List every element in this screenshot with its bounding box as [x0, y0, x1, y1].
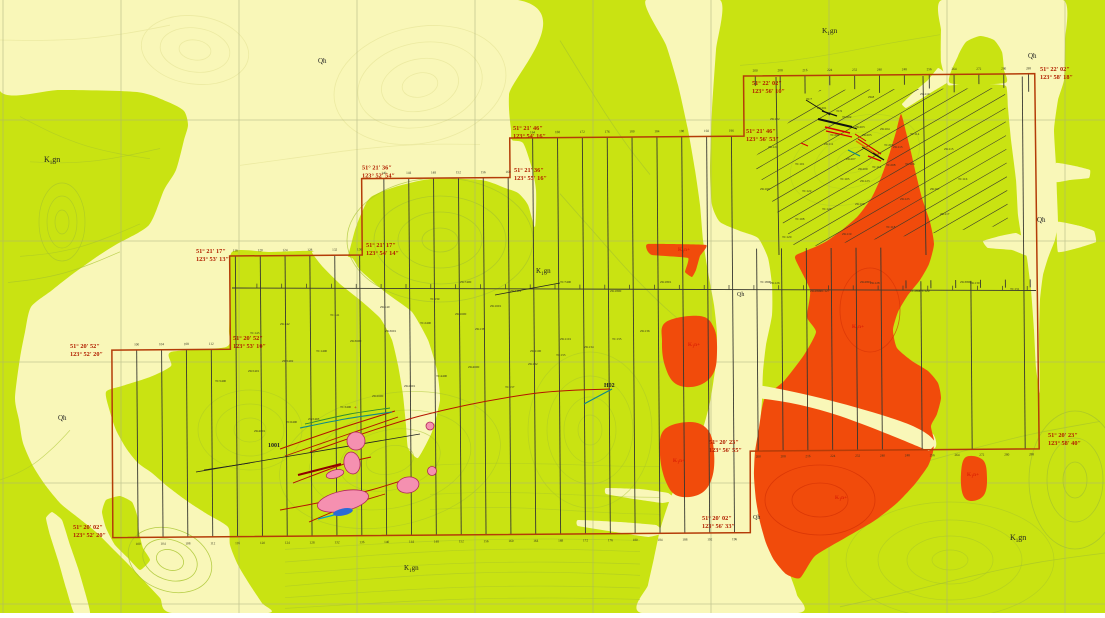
svg-text:123° 56′ 10″: 123° 56′ 10″: [752, 88, 785, 95]
svg-text:280: 280: [1004, 453, 1009, 457]
svg-text:Qh: Qh: [753, 515, 760, 521]
svg-text:144: 144: [406, 171, 411, 175]
svg-text:TC7400: TC7400: [560, 280, 571, 284]
svg-text:K1n+: K1n+: [852, 324, 864, 331]
svg-text:168: 168: [558, 539, 563, 543]
svg-text:144: 144: [409, 540, 414, 544]
svg-text:123° 58′ 40″: 123° 58′ 40″: [1048, 440, 1081, 447]
svg-text:TC120: TC120: [782, 235, 792, 239]
svg-text:164: 164: [533, 539, 538, 543]
svg-text:112: 112: [210, 541, 215, 545]
svg-text:188: 188: [682, 538, 687, 542]
svg-text:148: 148: [434, 540, 439, 544]
svg-text:TC108: TC108: [795, 217, 805, 221]
svg-text:256: 256: [930, 453, 935, 457]
svg-text:272: 272: [976, 67, 981, 71]
svg-text:264: 264: [951, 67, 956, 71]
svg-text:ZK130: ZK130: [970, 281, 980, 285]
svg-text:123° 53′ 13″: 123° 53′ 13″: [196, 256, 229, 263]
svg-text:TC112: TC112: [872, 165, 882, 169]
svg-text:192: 192: [707, 537, 712, 541]
svg-text:ZK102: ZK102: [770, 117, 780, 121]
svg-text:192: 192: [704, 129, 709, 133]
svg-text:123° 56′ 33″: 123° 56′ 33″: [702, 523, 735, 530]
svg-text:51° 20′ 02″: 51° 20′ 02″: [702, 515, 732, 522]
svg-text:248: 248: [905, 453, 910, 457]
svg-text:Qh: Qh: [1037, 216, 1046, 224]
svg-text:TC5400: TC5400: [215, 379, 226, 383]
svg-text:1001: 1001: [268, 443, 280, 449]
svg-text:ZK123: ZK123: [860, 179, 870, 183]
svg-text:TC2400: TC2400: [420, 321, 431, 325]
svg-text:180: 180: [633, 538, 638, 542]
svg-text:ZK113: ZK113: [893, 145, 903, 149]
svg-text:51° 20′ 02″: 51° 20′ 02″: [73, 524, 103, 531]
svg-text:Qh: Qh: [1028, 52, 1037, 60]
svg-text:TC208: TC208: [886, 163, 896, 167]
svg-text:123° 52′ 20″: 123° 52′ 20″: [73, 532, 106, 539]
svg-text:+: +: [354, 406, 357, 411]
svg-text:ZK3600: ZK3600: [350, 339, 362, 343]
svg-text:172: 172: [580, 130, 585, 134]
svg-text:TC9: TC9: [836, 109, 842, 113]
svg-text:ZK1100: ZK1100: [530, 349, 541, 353]
svg-text:196: 196: [729, 129, 734, 133]
svg-text:256: 256: [927, 67, 932, 71]
svg-text:TC127: TC127: [820, 289, 830, 293]
svg-text:TC133: TC133: [556, 353, 566, 357]
svg-text:ZK110: ZK110: [920, 92, 930, 96]
svg-text:TC143: TC143: [250, 331, 260, 335]
svg-text:116: 116: [235, 541, 240, 545]
svg-text:156: 156: [481, 170, 486, 174]
svg-text:51° 20′ 52″: 51° 20′ 52″: [233, 335, 263, 342]
svg-text:K1n+: K1n+: [967, 472, 979, 479]
svg-text:ZK8: ZK8: [868, 95, 875, 99]
svg-text:TC106: TC106: [905, 162, 915, 166]
svg-text:ZK134: ZK134: [584, 345, 594, 349]
svg-text:140: 140: [384, 540, 389, 544]
svg-text:ZK7401: ZK7401: [510, 289, 522, 293]
svg-text:Qh: Qh: [58, 414, 67, 422]
svg-text:160: 160: [508, 539, 513, 543]
svg-text:272: 272: [979, 453, 984, 457]
svg-text:K1n+: K1n+: [678, 247, 690, 254]
svg-text:K1n+: K1n+: [688, 342, 700, 349]
svg-text:51° 20′ 23″: 51° 20′ 23″: [1048, 432, 1078, 439]
svg-text:H02: H02: [604, 383, 615, 389]
svg-text:ZK126: ZK126: [770, 281, 780, 285]
svg-text:123° 58′ 18″: 123° 58′ 18″: [1040, 74, 1073, 81]
svg-text:132: 132: [332, 248, 337, 252]
svg-text:51° 21′ 17″: 51° 21′ 17″: [366, 242, 396, 249]
svg-text:120: 120: [260, 541, 265, 545]
svg-text:112: 112: [209, 342, 214, 346]
svg-text:51° 20′ 52″: 51° 20′ 52″: [70, 343, 100, 350]
svg-text:128: 128: [307, 248, 312, 252]
svg-text:ZK207: ZK207: [846, 157, 856, 161]
svg-text:ZK5402: ZK5402: [282, 359, 294, 363]
svg-text:TC141: TC141: [330, 313, 340, 317]
svg-text:ZK111: ZK111: [824, 142, 834, 146]
svg-text:51° 21′ 36″: 51° 21′ 36″: [514, 167, 544, 174]
svg-text:176: 176: [605, 130, 610, 134]
svg-text:172: 172: [583, 538, 588, 542]
svg-text:ZK5401: ZK5401: [248, 369, 260, 373]
svg-text:TC122: TC122: [802, 189, 812, 193]
svg-text:160: 160: [506, 170, 511, 174]
svg-text:TC202: TC202: [842, 115, 852, 119]
svg-text:168: 168: [555, 130, 560, 134]
svg-text:TC135: TC135: [612, 337, 622, 341]
svg-text:232: 232: [852, 68, 857, 72]
svg-text:51° 22′ 02″: 51° 22′ 02″: [752, 80, 782, 87]
svg-text:ZK128: ZK128: [870, 281, 880, 285]
svg-text:240: 240: [880, 454, 885, 458]
svg-text:120: 120: [258, 248, 263, 252]
svg-text:ZK201: ZK201: [817, 106, 827, 110]
svg-text:136: 136: [357, 247, 362, 251]
svg-text:ZK3601: ZK3601: [385, 329, 397, 333]
svg-text:51° 22′ 02″: 51° 22′ 02″: [1040, 66, 1070, 73]
svg-text:156: 156: [484, 539, 489, 543]
svg-text:104: 104: [161, 542, 166, 546]
svg-text:ZK107: ZK107: [930, 187, 940, 191]
svg-text:216: 216: [805, 454, 810, 458]
svg-text:196: 196: [732, 537, 737, 541]
svg-text:TC101: TC101: [795, 162, 805, 166]
svg-text:100: 100: [136, 542, 141, 546]
svg-text:123° 55′ 16″: 123° 55′ 16″: [514, 175, 547, 182]
svg-text:116: 116: [233, 248, 238, 252]
svg-text:TC129: TC129: [920, 289, 930, 293]
svg-text:132: 132: [334, 540, 339, 544]
svg-text:208: 208: [781, 454, 786, 458]
svg-text:ZK1801: ZK1801: [660, 280, 672, 284]
svg-text:TC1400: TC1400: [316, 349, 327, 353]
svg-text:248: 248: [902, 67, 907, 71]
svg-text:188: 188: [679, 129, 684, 133]
svg-text:152: 152: [459, 539, 464, 543]
svg-text:123° 54′ 16″: 123° 54′ 16″: [513, 133, 546, 140]
svg-text:100: 100: [134, 342, 139, 346]
svg-text:200: 200: [753, 69, 758, 73]
svg-text:128: 128: [310, 541, 315, 545]
svg-text:240: 240: [877, 68, 882, 72]
svg-text:ZK140: ZK140: [380, 305, 390, 309]
svg-text:123° 56′ 53″: 123° 56′ 53″: [746, 136, 779, 143]
svg-text:123° 52′ 20″: 123° 52′ 20″: [70, 351, 103, 358]
svg-text:264: 264: [954, 453, 959, 457]
svg-text:ZK115: ZK115: [944, 147, 954, 151]
svg-text:ZK209: ZK209: [858, 167, 868, 171]
svg-text:ZK138: ZK138: [475, 327, 485, 331]
svg-text:Qh: Qh: [737, 292, 744, 298]
svg-text:ZK119: ZK119: [842, 232, 852, 236]
svg-text:ZK117: ZK117: [940, 212, 950, 216]
svg-text:ZK109: ZK109: [855, 202, 865, 206]
svg-text:TC139: TC139: [430, 297, 440, 301]
svg-text:180: 180: [629, 130, 634, 134]
svg-text:216: 216: [802, 68, 807, 72]
svg-text:200: 200: [756, 455, 761, 459]
svg-text:TC105: TC105: [840, 177, 850, 181]
svg-text:152: 152: [456, 170, 461, 174]
svg-text:K1n+: K1n+: [835, 495, 847, 502]
svg-text:280: 280: [1001, 67, 1006, 71]
svg-text:184: 184: [658, 538, 663, 542]
svg-text:TC114: TC114: [910, 132, 920, 136]
svg-text:108: 108: [185, 542, 190, 546]
svg-text:51° 21′ 36″: 51° 21′ 36″: [362, 165, 392, 172]
svg-text:ZK121: ZK121: [768, 145, 778, 149]
svg-text:ZK4600: ZK4600: [468, 365, 480, 369]
svg-text:TC6400: TC6400: [286, 420, 297, 424]
svg-text:124: 124: [285, 541, 290, 545]
svg-text:288: 288: [1026, 66, 1031, 70]
svg-text:288: 288: [1029, 452, 1034, 456]
svg-text:ZK203: ZK203: [855, 125, 865, 129]
svg-text:51° 21′ 46″: 51° 21′ 46″: [746, 128, 776, 135]
svg-text:TC116: TC116: [958, 177, 968, 181]
svg-text:51° 21′ 46″: 51° 21′ 46″: [513, 125, 543, 132]
svg-text:ZK205: ZK205: [862, 133, 872, 137]
svg-text:224: 224: [830, 454, 835, 458]
svg-text:ZK136: ZK136: [640, 329, 650, 333]
svg-text:123° 52′ 54″: 123° 52′ 54″: [362, 172, 395, 179]
svg-text:123° 53′ 10″: 123° 53′ 10″: [233, 343, 266, 350]
svg-text:TC124: TC124: [822, 207, 832, 211]
svg-text:TC7: TC7: [806, 97, 812, 101]
svg-text:TC118: TC118: [886, 225, 896, 229]
svg-text:123° 54′ 14″: 123° 54′ 14″: [366, 250, 399, 257]
svg-text:ZK1600: ZK1600: [455, 312, 467, 316]
svg-text:51° 20′ 23″: 51° 20′ 23″: [709, 439, 739, 446]
svg-text:232: 232: [855, 454, 860, 458]
svg-text:124: 124: [282, 248, 287, 252]
svg-text:123° 56′ 55″: 123° 56′ 55″: [709, 447, 742, 454]
svg-text:TC3400: TC3400: [340, 405, 351, 409]
svg-text:Qh: Qh: [318, 57, 327, 65]
svg-text:136: 136: [359, 540, 364, 544]
svg-text:ZK104: ZK104: [880, 127, 890, 131]
svg-text:ZK142: ZK142: [280, 322, 290, 326]
svg-text:ZK1800: ZK1800: [610, 289, 622, 293]
svg-text:ZK125: ZK125: [900, 197, 910, 201]
svg-text:184: 184: [654, 129, 659, 133]
svg-text:ZK1101: ZK1101: [560, 337, 571, 341]
svg-text:ZK103: ZK103: [760, 187, 770, 191]
svg-text:148: 148: [431, 171, 436, 175]
svg-text:108: 108: [184, 342, 189, 346]
svg-text:208: 208: [778, 68, 783, 72]
svg-text:ZK132: ZK132: [528, 362, 538, 366]
svg-text:104: 104: [159, 342, 164, 346]
svg-text:176: 176: [608, 538, 613, 542]
svg-text:TC4400: TC4400: [436, 374, 447, 378]
svg-text:TC131: TC131: [1010, 287, 1020, 291]
svg-text:TC137: TC137: [505, 385, 515, 389]
svg-text:TC204: TC204: [830, 133, 840, 137]
svg-text:ZK1601: ZK1601: [490, 304, 502, 308]
svg-text:ZK4601: ZK4601: [254, 429, 266, 433]
svg-text:ZK2600: ZK2600: [372, 394, 384, 398]
svg-text:ZK5403: ZK5403: [308, 417, 320, 421]
svg-text:K1n+: K1n+: [673, 458, 685, 465]
svg-text:ZK7400: ZK7400: [460, 280, 472, 284]
svg-text:224: 224: [827, 68, 832, 72]
svg-text:ZK2601: ZK2601: [404, 384, 416, 388]
svg-text:51° 21′ 17″: 51° 21′ 17″: [196, 248, 226, 255]
